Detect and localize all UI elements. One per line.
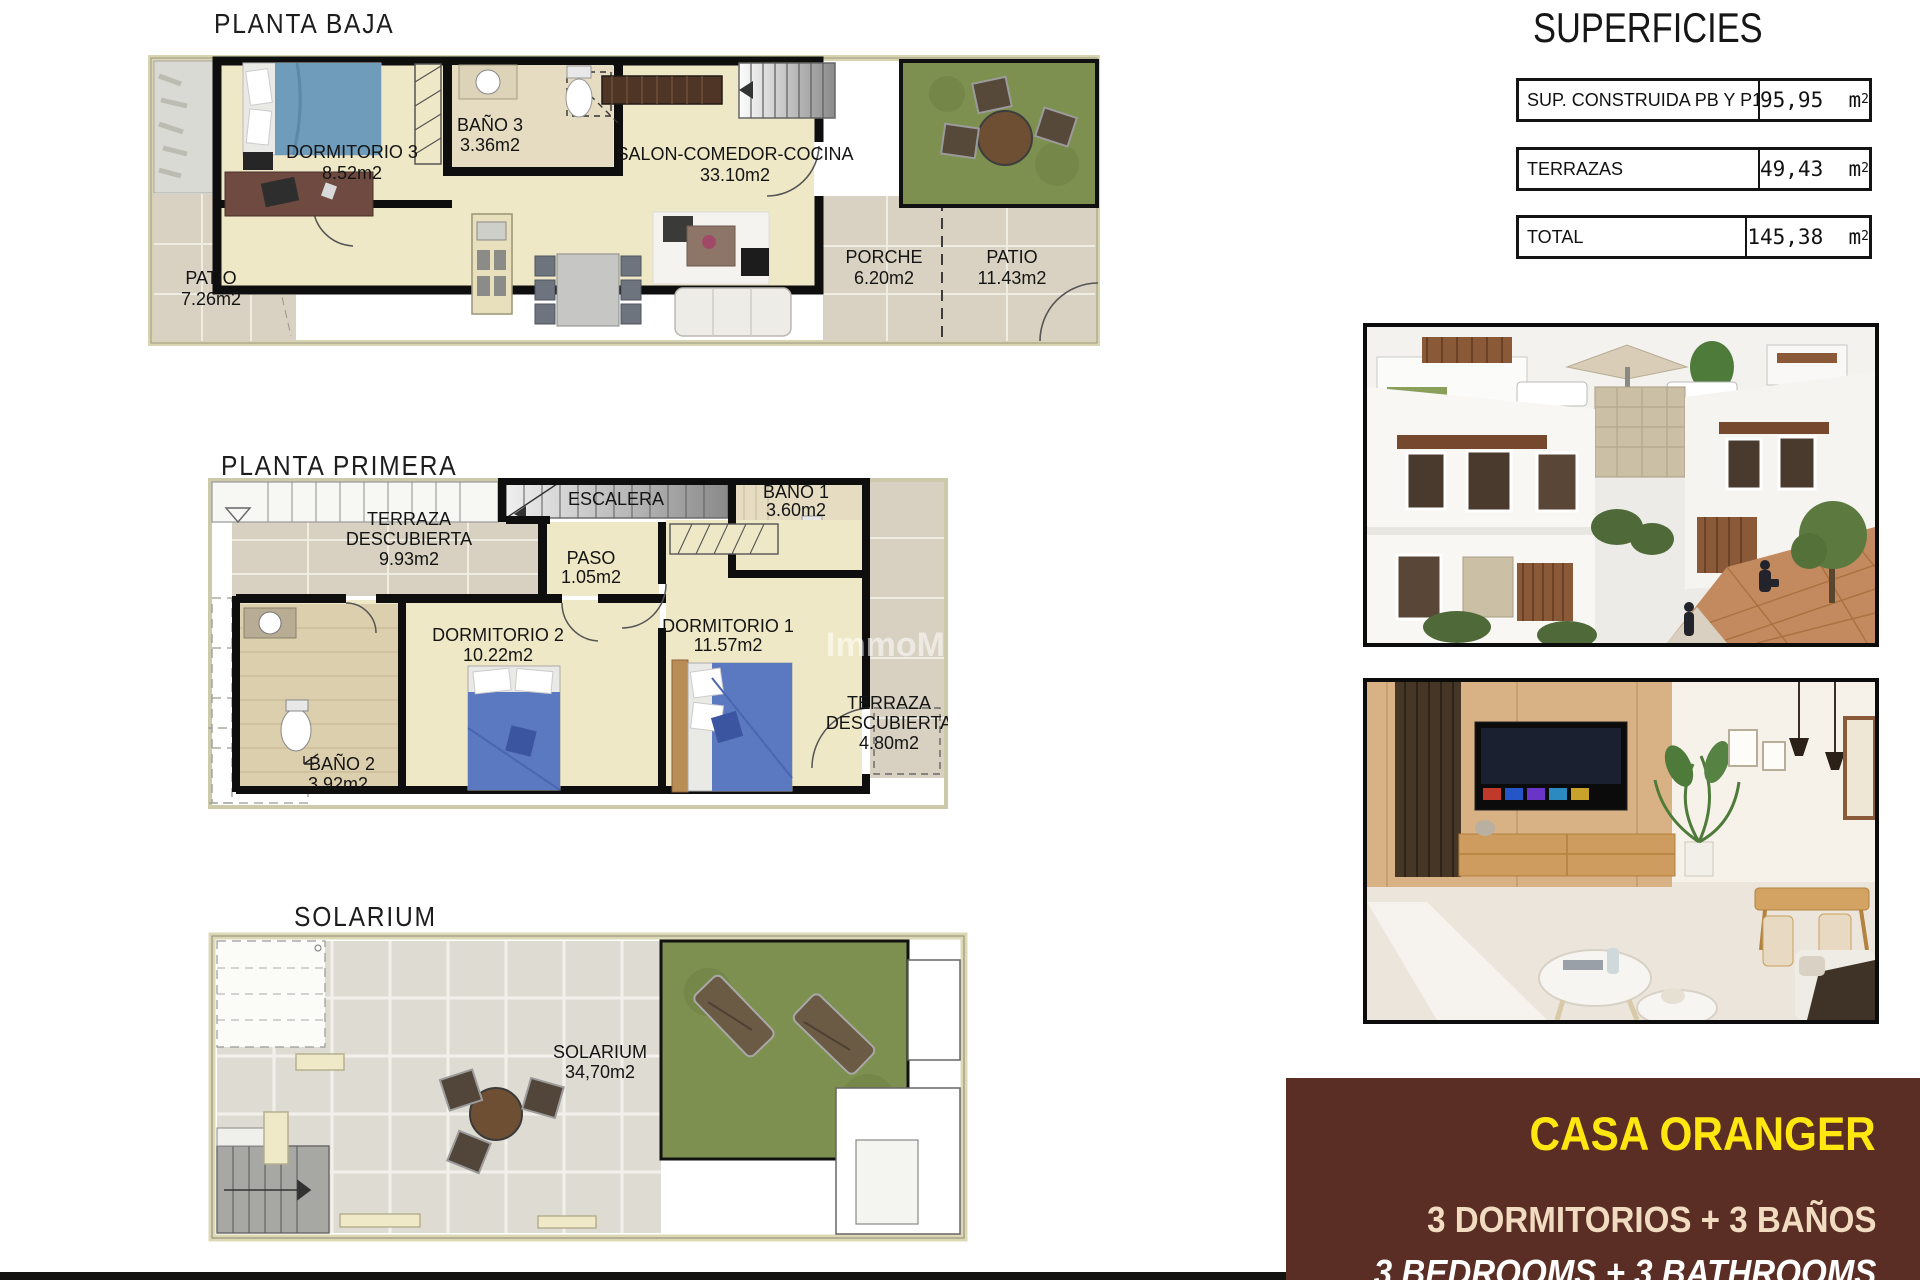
room-area: 33.10m2 bbox=[700, 165, 770, 185]
kitchen-island bbox=[472, 214, 512, 314]
room-label: DORMITORIO 3 bbox=[286, 142, 418, 162]
sink bbox=[459, 65, 517, 99]
solarium-floorplan: SOLARIUM 34,70m2 bbox=[208, 932, 970, 1242]
planta-primera-floorplan: TERRAZA DESCUBIERTA 9.93m2 ESCALERA BAÑO… bbox=[208, 478, 948, 809]
room-area: 3.60m2 bbox=[766, 500, 826, 520]
room-label: PASO bbox=[567, 548, 616, 568]
room-label: ESCALERA bbox=[568, 489, 664, 509]
room-area: 9.93m2 bbox=[379, 549, 439, 569]
room-area: 7.26m2 bbox=[181, 289, 241, 309]
superficies-row-total: TOTAL 145,38 m2 bbox=[1516, 215, 1872, 259]
room-label: SALON-COMEDOR-COCINA bbox=[616, 144, 853, 164]
stairs bbox=[739, 63, 835, 118]
superficies-row-construida: SUP. CONSTRUIDA PB Y P1 95,95 m2 bbox=[1516, 78, 1872, 122]
brand-name: CASA ORANGER bbox=[1530, 1106, 1876, 1161]
tv bbox=[1475, 722, 1627, 810]
room-label: DORMITORIO 2 bbox=[432, 625, 564, 645]
superficies-row-terrazas: TERRAZAS 49,43 m2 bbox=[1516, 147, 1872, 191]
superficies-label: TERRAZAS bbox=[1519, 150, 1760, 188]
room-area: 34,70m2 bbox=[565, 1062, 635, 1082]
room-area: 11.43m2 bbox=[978, 268, 1047, 288]
brochure-page: PLANTA BAJA PLANTA PRIMERA SOLARIUM bbox=[0, 0, 1920, 1280]
watermark: ImmoM bbox=[826, 626, 945, 664]
bed-dormitorio2 bbox=[468, 666, 560, 790]
room-label: TERRAZA bbox=[367, 509, 451, 529]
exterior-render-scene bbox=[1367, 327, 1875, 643]
toilet bbox=[281, 709, 311, 751]
wood-fence bbox=[1517, 563, 1573, 621]
room-area: 1.05m2 bbox=[561, 567, 621, 587]
room-label: PATIO bbox=[986, 247, 1037, 267]
room-area: 3.92m2 bbox=[308, 774, 368, 794]
superficies-value: 49,43 m2 bbox=[1760, 150, 1869, 188]
sink bbox=[259, 612, 281, 634]
room-label: BAÑO 2 bbox=[309, 753, 375, 774]
brand-line-english: 3 BEDROOMS + 3 BATHROOMS bbox=[1373, 1252, 1876, 1280]
planta-baja-floorplan: DORMITORIO 3 8.52m2 BAÑO 3 3.36m2 SALON-… bbox=[147, 54, 1104, 350]
rug-coffee-table bbox=[653, 212, 769, 284]
superficies-title: SUPERFICIES bbox=[1533, 4, 1763, 52]
sofa bbox=[1795, 950, 1875, 1020]
room-area: 10.22m2 bbox=[463, 645, 533, 665]
grass-patio bbox=[901, 61, 1097, 206]
room-area: 6.20m2 bbox=[854, 268, 914, 288]
sofa bbox=[675, 288, 791, 336]
room-label: SOLARIUM bbox=[553, 1042, 647, 1062]
stone-strip bbox=[154, 61, 213, 193]
stair-void bbox=[217, 941, 325, 1047]
room-label: DESCUBIERTA bbox=[826, 713, 948, 733]
room-label: BAÑO 3 bbox=[457, 114, 523, 135]
dining-set bbox=[535, 254, 641, 326]
stairs-upper-landing bbox=[212, 482, 498, 522]
room-label: BAÑO 1 bbox=[763, 481, 829, 502]
superficies-label: TOTAL bbox=[1519, 218, 1747, 256]
interior-render-photo bbox=[1363, 678, 1879, 1024]
superficies-label: SUP. CONSTRUIDA PB Y P1 bbox=[1519, 81, 1760, 119]
solarium-title: SOLARIUM bbox=[294, 901, 437, 933]
wardrobe bbox=[415, 64, 441, 164]
room-area: 4.80m2 bbox=[859, 733, 919, 753]
room-area: 3.36m2 bbox=[460, 135, 520, 155]
bed-dormitorio1 bbox=[672, 660, 792, 792]
stone-wall bbox=[1595, 387, 1685, 477]
superficies-value: 95,95 m2 bbox=[1760, 81, 1869, 119]
exterior-render-photo bbox=[1363, 323, 1879, 647]
superficies-value: 145,38 m2 bbox=[1747, 218, 1869, 256]
toilet bbox=[566, 66, 592, 117]
room-label: DORMITORIO 1 bbox=[662, 616, 794, 636]
room-area: 8.52m2 bbox=[322, 163, 382, 183]
brand-line-spanish: 3 DORMITORIOS + 3 BAÑOS bbox=[1427, 1199, 1876, 1241]
room-label: DESCUBIERTA bbox=[346, 529, 472, 549]
room-label: PORCHE bbox=[845, 247, 922, 267]
interior-render-scene bbox=[1367, 682, 1875, 1020]
brand-panel: CASA ORANGER 3 DORMITORIOS + 3 BAÑOS 3 B… bbox=[1286, 1078, 1920, 1280]
planta-baja-title: PLANTA BAJA bbox=[214, 8, 394, 40]
room-label: PATIO bbox=[185, 268, 236, 288]
window bbox=[1845, 718, 1875, 818]
garden-table bbox=[978, 111, 1032, 165]
room-label: TERRAZA bbox=[847, 693, 931, 713]
room-area: 11.57m2 bbox=[694, 635, 763, 655]
kitchen-counter bbox=[602, 76, 722, 104]
wardrobe bbox=[670, 524, 778, 554]
